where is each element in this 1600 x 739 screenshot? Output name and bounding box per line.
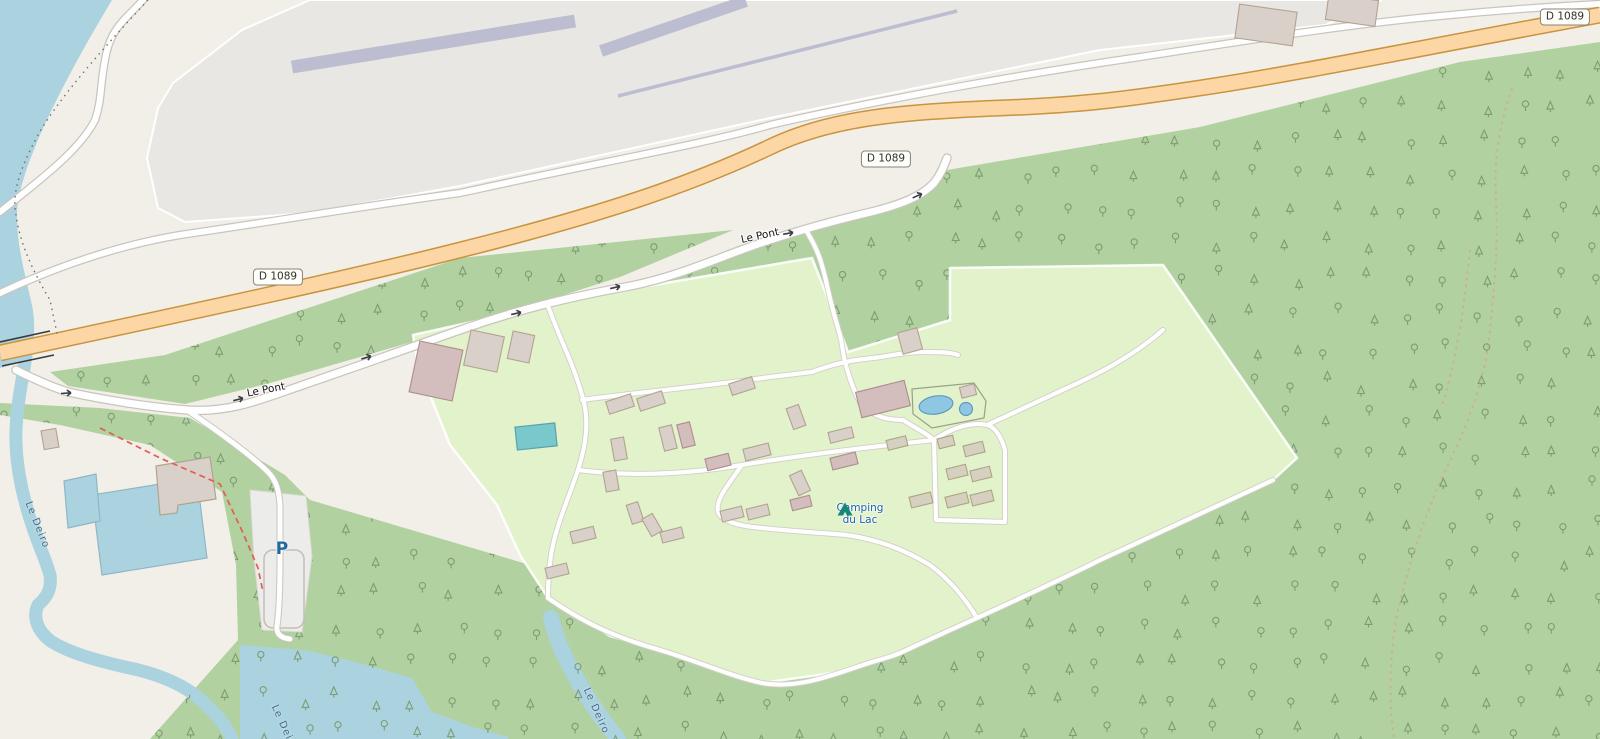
building <box>603 470 619 492</box>
building <box>41 428 59 449</box>
pool-round <box>960 403 973 416</box>
building <box>1235 4 1297 46</box>
map-base-layer <box>0 0 1600 739</box>
pool-rect <box>515 423 557 450</box>
building <box>464 330 505 372</box>
map-canvas[interactable]: D 1089 D 1089 D 1089 Le Pont Le Pont Le … <box>0 0 1600 739</box>
